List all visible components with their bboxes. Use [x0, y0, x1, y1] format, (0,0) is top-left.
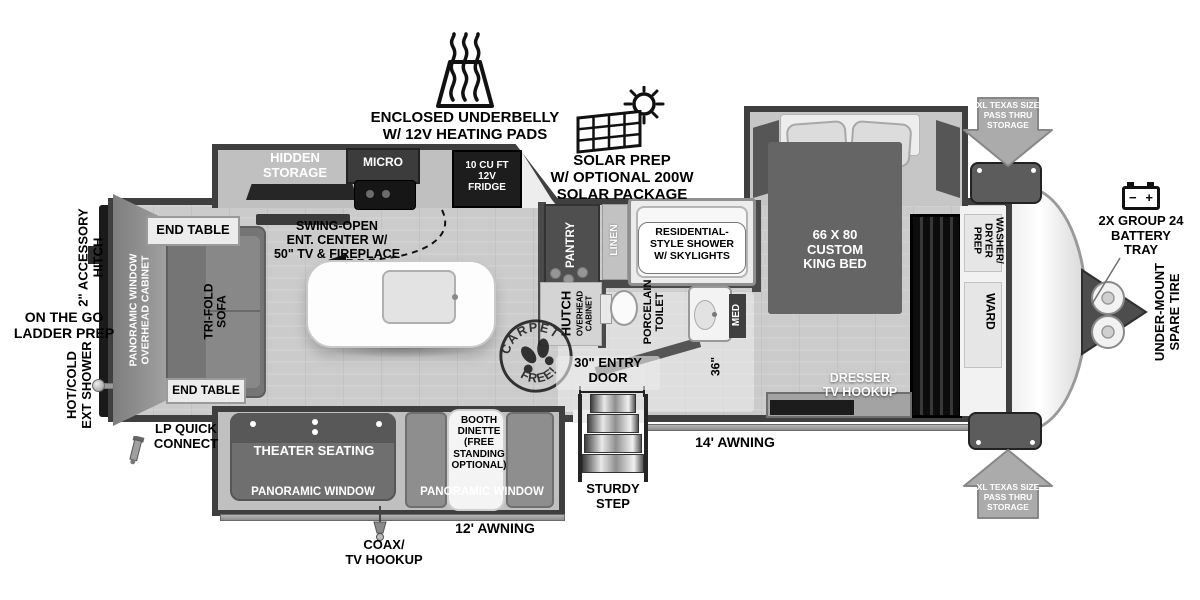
king-bed-label: 66 X 80 CUSTOM KING BED — [771, 228, 899, 278]
pass-thru-box-bottom-dot-2 — [1030, 440, 1035, 445]
overhead-cabinet-label: OVERHEAD CABINET — [577, 284, 596, 344]
awning-12-label: 12' AWNING — [440, 521, 550, 538]
battery-terminal — [1127, 182, 1134, 187]
lp-connector-icon — [124, 436, 146, 466]
theater-backrest — [230, 413, 396, 443]
end-table-top-label: END TABLE — [146, 223, 240, 239]
door-dim-line — [579, 391, 645, 393]
ext-shower-label: HOT/COLD EXT SHOWER — [65, 339, 95, 431]
pantry-can — [550, 268, 561, 279]
hidden-storage-label: HIDDEN STORAGE — [233, 151, 357, 183]
pass-thru-bottom-label: XL TEXAS SIZE PASS THRU STORAGE — [962, 482, 1054, 520]
heating-pads-icon — [424, 32, 506, 110]
pano-window-left-label: PANORAMIC WINDOW — [230, 486, 396, 499]
porcelain-toilet-label: PORCELAIN TOILET — [642, 276, 668, 348]
dresser-label: DRESSER TV HOOKUP — [800, 371, 920, 403]
stove-burner — [366, 190, 374, 198]
island-sink — [382, 270, 456, 324]
washer-dryer-prep-label: WASHER/ DRYER PREP — [972, 202, 1005, 280]
island-faucet — [452, 294, 458, 300]
entry-steps-icon — [578, 394, 648, 482]
dim-36-label: 36" — [710, 351, 723, 383]
spare-tire-label: UNDER-MOUNT SPARE TIRE — [1153, 256, 1183, 368]
sofa-label: TRI-FOLD SOFA — [203, 237, 230, 387]
ext-shower-knob-stem — [104, 383, 114, 389]
linen-label: LINEN — [609, 208, 621, 272]
awning-14-bar — [646, 424, 1012, 431]
underbelly-label: ENCLOSED UNDERBELLY W/ 12V HEATING PADS — [352, 110, 578, 143]
end-table-bottom-label: END TABLE — [166, 384, 246, 399]
pantry-label: PANTRY — [565, 205, 579, 285]
ladder-prep-label: ON THE GO LADDER PREP — [8, 310, 120, 344]
awning-14-label: 14' AWNING — [676, 435, 794, 452]
battery-icon: − + — [1122, 186, 1160, 210]
theater-label: THEATER SEATING — [234, 444, 394, 460]
accessory-hitch-label: 2" ACCESSORY HITCH — [77, 199, 108, 317]
theater-cupholder-4 — [376, 421, 382, 427]
med-label: MED — [731, 295, 743, 335]
coax-label: COAX/ TV HOOKUP — [324, 538, 444, 570]
micro-label: MICRO — [346, 156, 420, 172]
toilet-bowl — [610, 290, 638, 326]
stove-burner-2 — [382, 190, 390, 198]
ward-label: WARD — [984, 283, 997, 341]
fridge-label: 10 CU FT 12V FRIDGE — [452, 160, 522, 200]
vanity-faucet — [712, 312, 717, 317]
sturdy-step-label: STURDY STEP — [568, 482, 658, 516]
entry-door-label: 30" ENTRY DOOR — [556, 356, 660, 390]
pano-window-right-label: PANORAMIC WINDOW — [397, 486, 567, 499]
theater-cupholder-2 — [312, 419, 318, 425]
battery-terminal-2 — [1147, 182, 1154, 187]
pass-thru-box-top-dot — [977, 168, 982, 173]
lp-quick-label: LP QUICK CONNECT — [134, 422, 238, 454]
bedroom-window-right — [936, 120, 960, 198]
front-cap — [1002, 186, 1088, 432]
pass-thru-box-top-dot-2 — [1031, 168, 1036, 173]
battery-plus: + — [1145, 190, 1153, 205]
shower-label: RESIDENTIAL- STYLE SHOWER W/ SKYLIGHTS — [638, 227, 746, 271]
theater-cupholder-3 — [312, 429, 318, 435]
solar-prep-icon — [572, 86, 672, 158]
solar-prep-label: SOLAR PREP W/ OPTIONAL 200W SOLAR PACKAG… — [524, 153, 720, 203]
theater-cupholder — [250, 421, 256, 427]
pass-thru-top-label: XL TEXAS SIZE PASS THRU STORAGE — [962, 100, 1054, 138]
pass-thru-box-bottom-dot — [976, 440, 981, 445]
floorplan-canvas: PANORAMIC WINDOW OVERHEAD CABINET HIDDEN… — [0, 0, 1200, 600]
battery-minus: − — [1129, 190, 1137, 205]
hidden-storage-slot — [246, 184, 358, 200]
